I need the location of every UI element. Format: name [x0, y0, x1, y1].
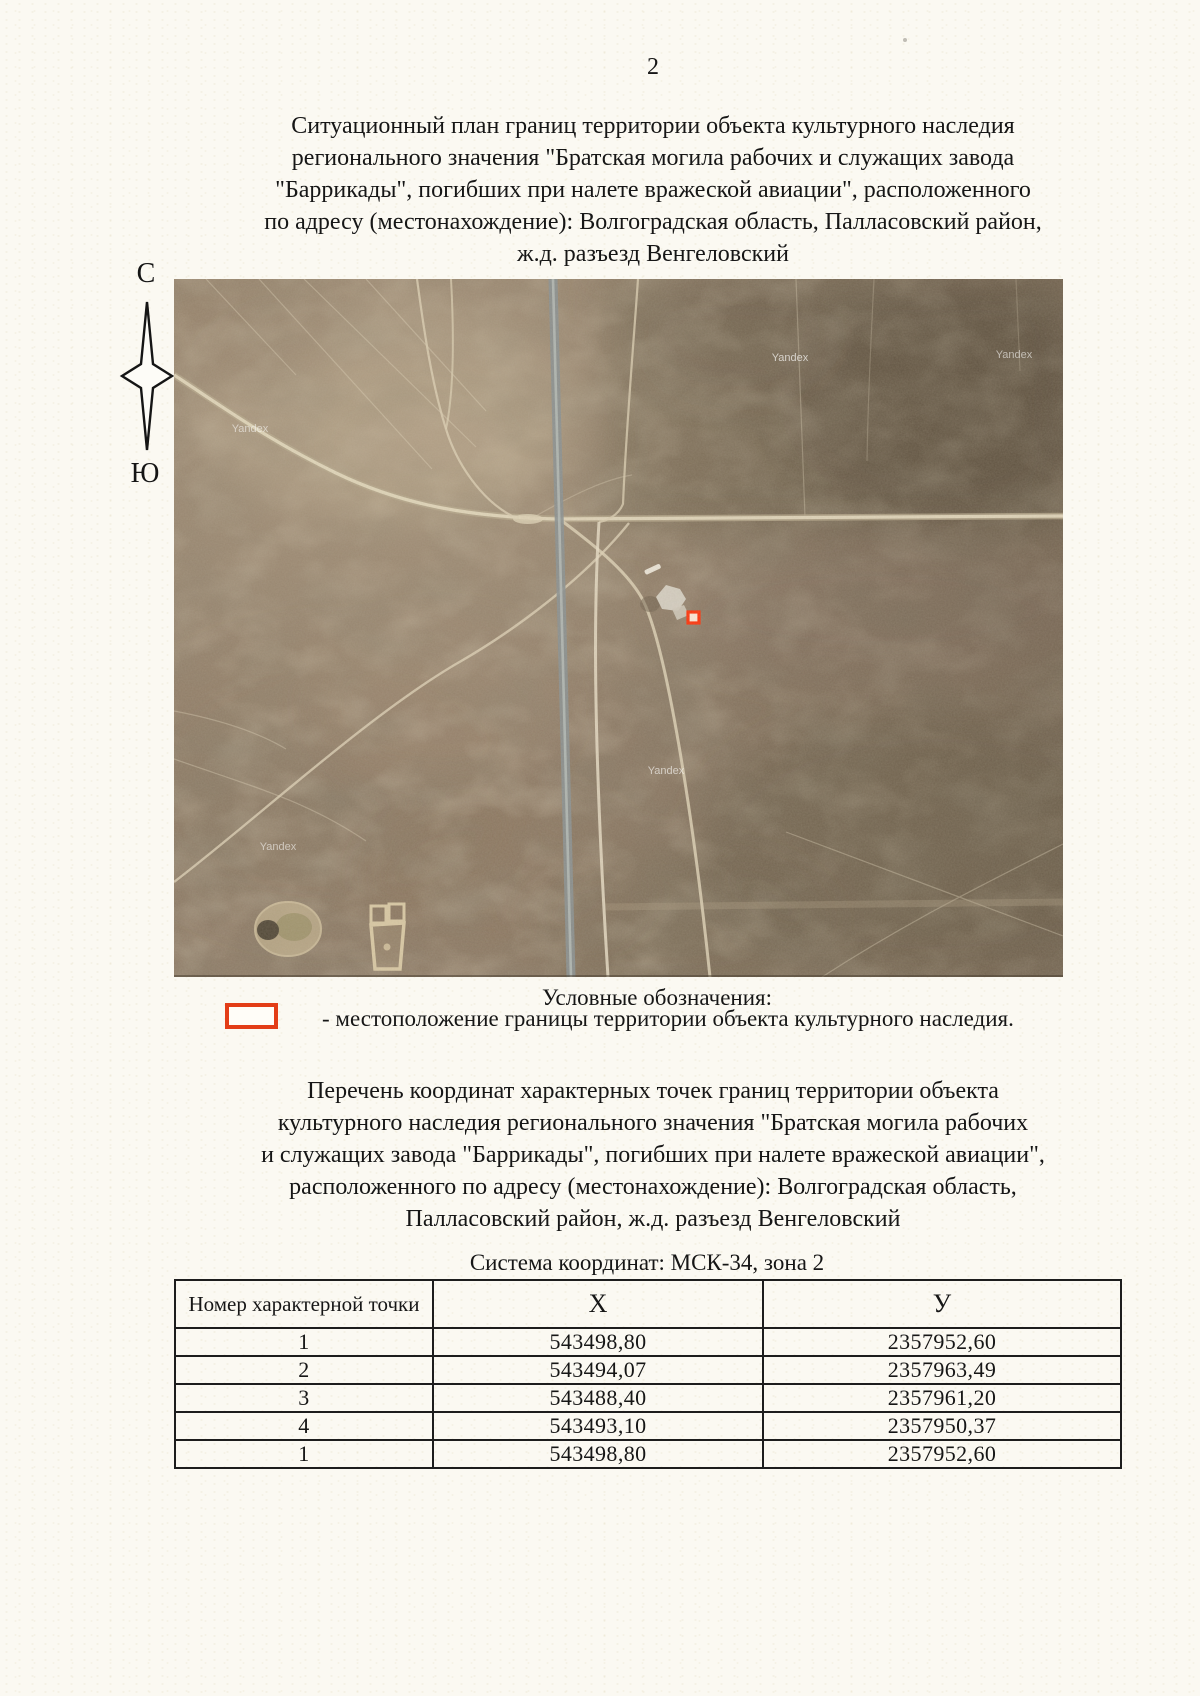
title-line: регионального значения "Братская могила … [106, 142, 1200, 174]
coords-heading-line: расположенного по адресу (местонахождени… [106, 1171, 1200, 1203]
point-number-cell: 3 [175, 1384, 433, 1412]
x-coordinate-cell: 543494,07 [433, 1356, 763, 1384]
table-header-point-number: Номер характерной точки [175, 1280, 433, 1328]
point-number-cell: 1 [175, 1440, 433, 1468]
legend-item-text: - местоположение границы территории объе… [322, 1006, 1014, 1032]
table-row: 1 543498,80 2357952,60 [175, 1440, 1121, 1468]
legend-boundary-symbol [225, 1003, 278, 1029]
scanned-document-page: { "page": { "number": "2" }, "title": { … [0, 0, 1200, 1696]
coordinate-system-label: Система координат: МСК-34, зона 2 [174, 1250, 1120, 1276]
compass-south-label: Ю [131, 458, 160, 485]
map-grain [174, 279, 1063, 977]
situational-plan-title: Ситуационный план границ территории объе… [106, 110, 1200, 270]
title-line: по адресу (местонахождение): Волгоградск… [106, 206, 1200, 238]
coords-heading-line: Палласовский район, ж.д. разъезд Венгело… [106, 1203, 1200, 1235]
compass-north-label: С [137, 258, 156, 289]
table-header-x: Х [433, 1280, 763, 1328]
y-coordinate-cell: 2357961,20 [763, 1384, 1121, 1412]
map-bottom-edge [174, 975, 1063, 977]
satellite-map: Yandex Yandex Yandex Yandex Yandex [174, 279, 1063, 977]
coords-heading-line: Перечень координат характерных точек гра… [106, 1075, 1200, 1107]
coordinates-table: Номер характерной точки Х У 1 543498,80 … [174, 1279, 1122, 1469]
x-coordinate-cell: 543498,80 [433, 1440, 763, 1468]
scan-speck [903, 38, 907, 42]
table-row: 3 543488,40 2357961,20 [175, 1384, 1121, 1412]
x-coordinate-cell: 543493,10 [433, 1412, 763, 1440]
table-row: 4 543493,10 2357950,37 [175, 1412, 1121, 1440]
y-coordinate-cell: 2357952,60 [763, 1440, 1121, 1468]
table-row: 1 543498,80 2357952,60 [175, 1328, 1121, 1356]
coordinates-list-heading: Перечень координат характерных точек гра… [106, 1075, 1200, 1235]
title-line: Ситуационный план границ территории объе… [106, 110, 1200, 142]
table-row: 2 543494,07 2357963,49 [175, 1356, 1121, 1384]
point-number-cell: 1 [175, 1328, 433, 1356]
point-number-cell: 4 [175, 1412, 433, 1440]
y-coordinate-cell: 2357950,37 [763, 1412, 1121, 1440]
table-header-y: У [763, 1280, 1121, 1328]
coords-heading-line: культурного наследия регионального значе… [106, 1107, 1200, 1139]
x-coordinate-cell: 543488,40 [433, 1384, 763, 1412]
page-number: 2 [106, 54, 1200, 81]
compass-star [122, 302, 172, 450]
title-line: ж.д. разъезд Венгеловский [106, 238, 1200, 270]
y-coordinate-cell: 2357952,60 [763, 1328, 1121, 1356]
title-line: "Баррикады", погибших при налете вражеск… [106, 174, 1200, 206]
y-coordinate-cell: 2357963,49 [763, 1356, 1121, 1384]
point-number-cell: 2 [175, 1356, 433, 1384]
coords-heading-line: и служащих завода "Баррикады", погибших … [106, 1139, 1200, 1171]
table-header-row: Номер характерной точки Х У [175, 1280, 1121, 1328]
x-coordinate-cell: 543498,80 [433, 1328, 763, 1356]
